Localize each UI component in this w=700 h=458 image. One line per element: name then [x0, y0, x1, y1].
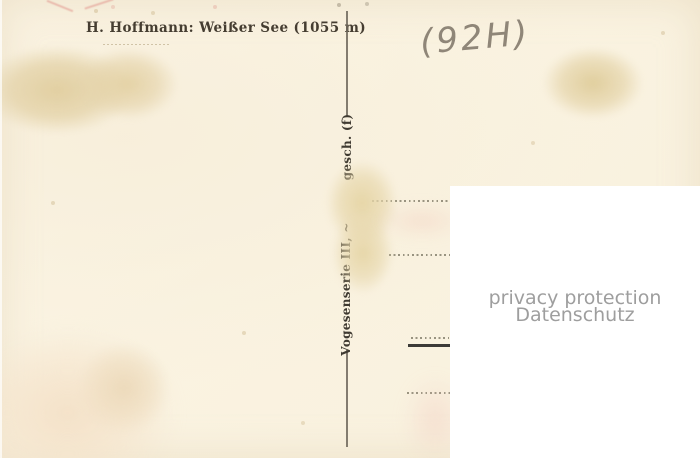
stain-bottom-left — [78, 342, 170, 434]
privacy-overlay: privacy protection Datenschutz — [450, 186, 700, 458]
address-dotted-line-3 — [411, 337, 449, 339]
paper-left-edge — [0, 0, 2, 458]
address-dotted-line-2 — [389, 254, 450, 256]
stain-top-right — [543, 47, 643, 119]
divider-line-top — [346, 11, 348, 117]
postcard-back: H. Hoffmann: Weißer See (1055 m) (92H) V… — [0, 0, 700, 458]
divider-line-bottom — [346, 350, 348, 447]
publisher-title: H. Hoffmann: Weißer See (1055 m) — [86, 20, 366, 36]
stain-top-left-2 — [78, 48, 178, 120]
handwritten-note: (92H) — [418, 13, 531, 62]
pink-scratch-mark-1 — [47, 0, 74, 12]
privacy-overlay-line2: Datenschutz — [450, 307, 700, 324]
address-solid-line — [408, 344, 453, 347]
privacy-overlay-text: privacy protection Datenschutz — [450, 290, 700, 324]
title-underline-mark — [103, 44, 169, 45]
pink-scratch-mark-2 — [84, 0, 113, 9]
